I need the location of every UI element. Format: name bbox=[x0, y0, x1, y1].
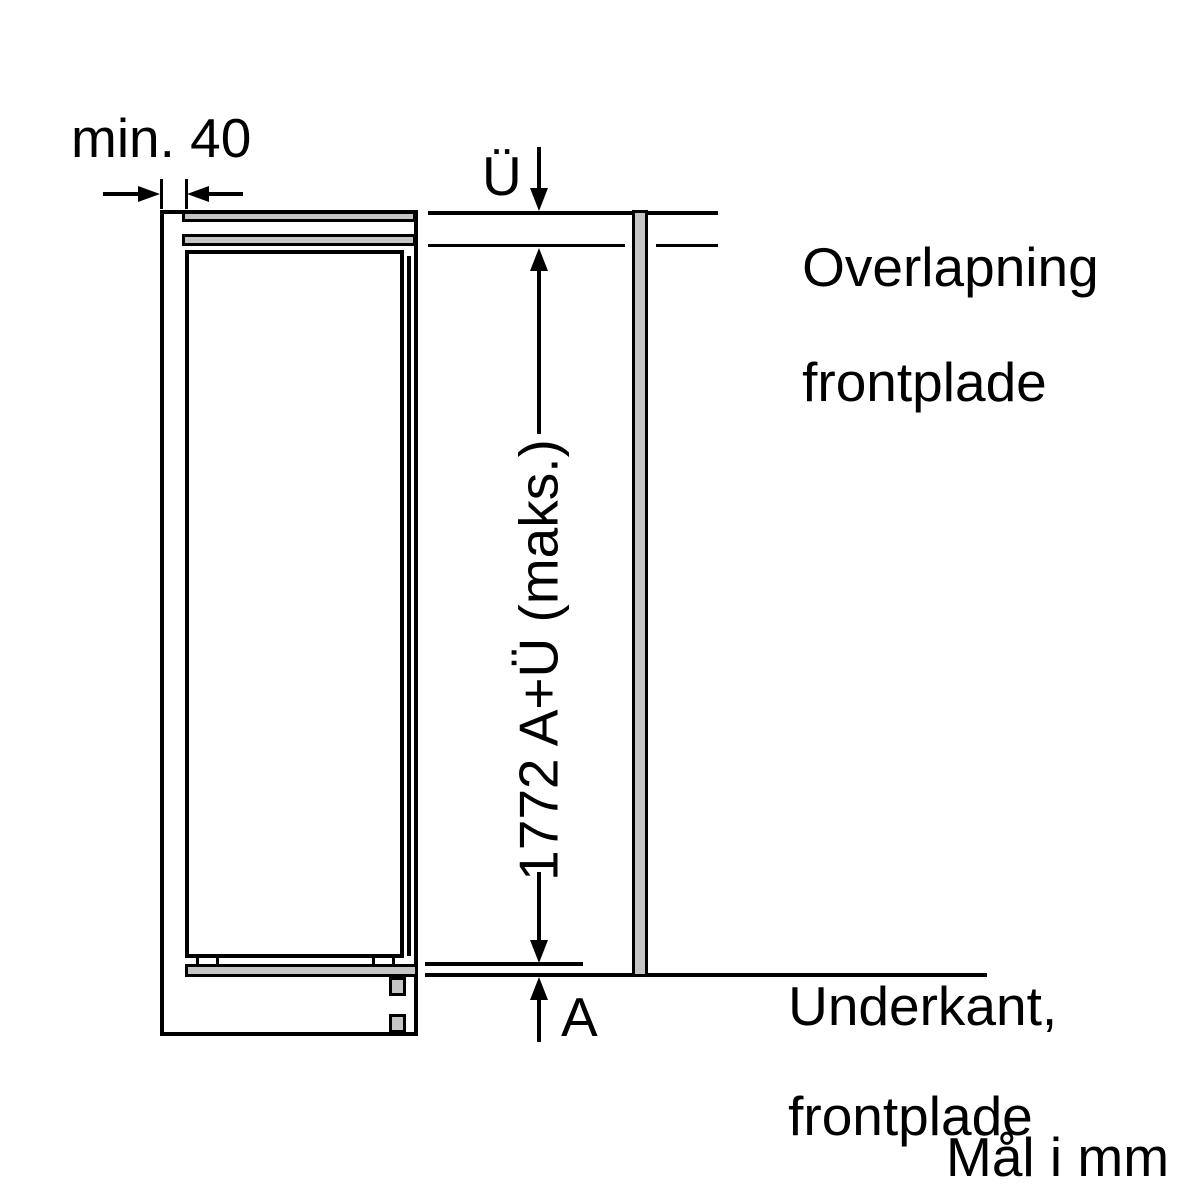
installation-diagram: min. 40 Ü Overlapning frontplade 1772 A+… bbox=[0, 0, 1200, 1200]
dim-height-top-stem bbox=[537, 268, 541, 434]
overlap-note: Overlapning frontplade bbox=[741, 181, 1099, 470]
underkant-note-line1: Underkant, bbox=[788, 975, 1057, 1037]
dim-min40-tick-left bbox=[160, 179, 163, 209]
dim-bottom-arrowhead-icon bbox=[530, 977, 548, 1000]
dim-height-bottom-arrowhead-icon bbox=[530, 940, 548, 963]
base-rail bbox=[185, 964, 418, 977]
dim-bottom-arrow-stem bbox=[537, 998, 541, 1042]
dim-min40-left-arrowhead-icon bbox=[138, 186, 160, 202]
hinge-block-upper bbox=[389, 977, 406, 996]
overlap-note-line2: frontplade bbox=[802, 351, 1047, 413]
furniture-front-panel bbox=[632, 210, 648, 977]
dim-overlap-arrow-stem bbox=[537, 147, 541, 190]
dim-min40-left-stem bbox=[103, 192, 143, 196]
top-rail-lower bbox=[182, 234, 416, 246]
door-hinge-gap-line bbox=[407, 256, 411, 956]
appliance-door bbox=[185, 250, 404, 958]
overlap-symbol-label: Ü bbox=[482, 148, 522, 206]
ext-line-overlap-bottom-right bbox=[656, 244, 718, 248]
ext-line-underkant-top bbox=[425, 962, 583, 966]
bottom-symbol-label: A bbox=[561, 989, 598, 1047]
top-rail-upper bbox=[182, 211, 416, 222]
dim-height-bottom-stem bbox=[537, 872, 541, 940]
overlap-note-line1: Overlapning bbox=[802, 236, 1099, 298]
hinge-block-lower bbox=[389, 1014, 406, 1033]
units-note: Mål i mm bbox=[946, 1129, 1169, 1187]
ext-line-overlap-top bbox=[428, 211, 718, 215]
min-width-label: min. 40 bbox=[71, 110, 251, 168]
dim-overlap-arrowhead-icon bbox=[530, 188, 548, 211]
ext-line-overlap-bottom-left bbox=[428, 244, 625, 248]
height-dimension-label: 1772 A+Ü (maks.) bbox=[512, 439, 567, 881]
dim-min40-right-stem bbox=[205, 192, 243, 196]
